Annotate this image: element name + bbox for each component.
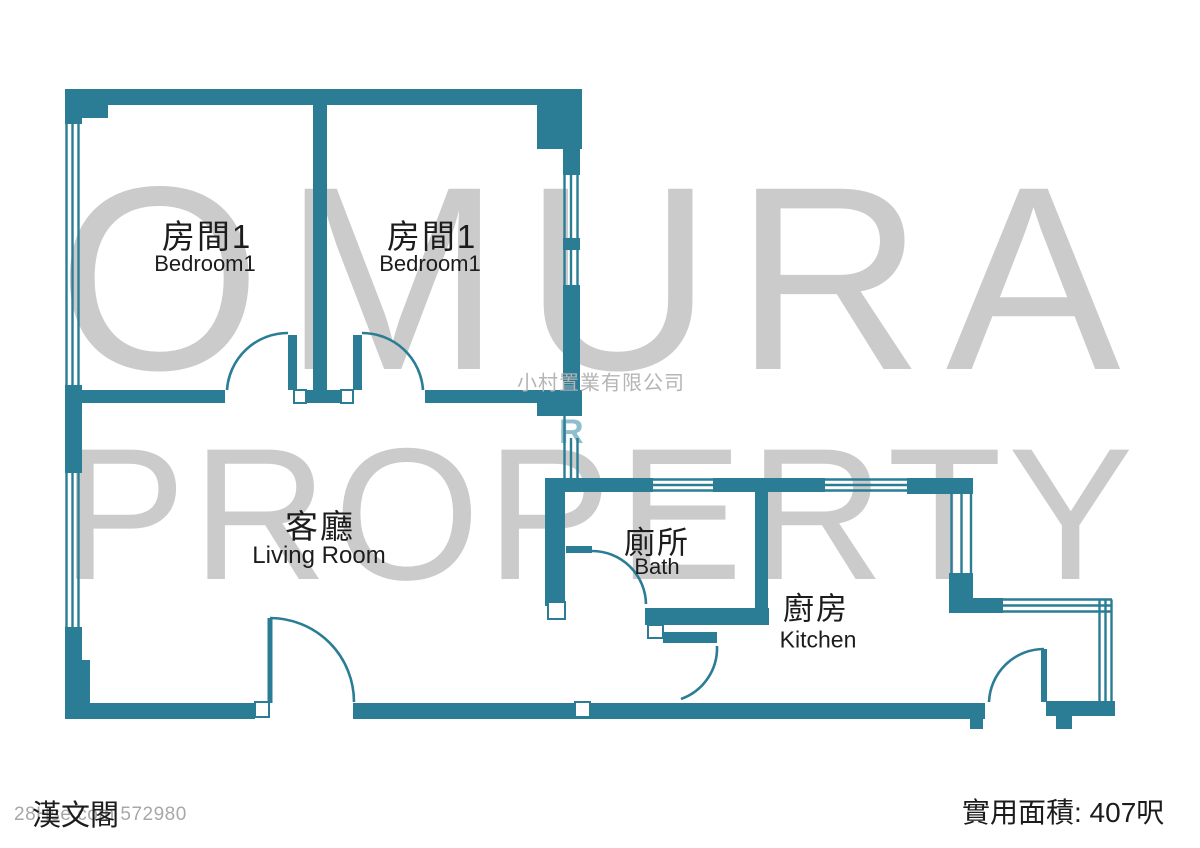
entrance-door-arc — [270, 618, 354, 702]
passage-door-leaf — [663, 632, 717, 643]
floor-plan-page: OMURA PROPERTY — [0, 0, 1200, 848]
passage-door-arc — [681, 646, 717, 699]
living-room-label-en: Living Room — [252, 542, 385, 570]
bedroom1-left-label-en: Bedroom1 — [154, 251, 256, 277]
usable-area-text: 實用面積: 407呎 — [962, 791, 1164, 831]
floor-plan-drawing: R — [0, 0, 1200, 848]
watermark-agency: 小村置業有限公司 — [517, 367, 685, 396]
living-room-label-zh: 客廳 — [285, 500, 355, 548]
bedroom1-door-arc — [227, 333, 288, 390]
bedroom1-right-label-en: Bedroom1 — [379, 251, 481, 277]
kitchen-label-zh: 廚房 — [783, 584, 849, 629]
building-name: 漢文閣 — [32, 792, 119, 834]
bath-door-leaf — [566, 546, 592, 553]
kitchen-label-en: Kitchen — [780, 627, 857, 654]
kitchen-door-arc — [989, 649, 1044, 702]
bath-label-en: Bath — [634, 554, 679, 580]
bedroom2-door-arc — [362, 333, 423, 390]
walls-group — [65, 89, 1115, 729]
